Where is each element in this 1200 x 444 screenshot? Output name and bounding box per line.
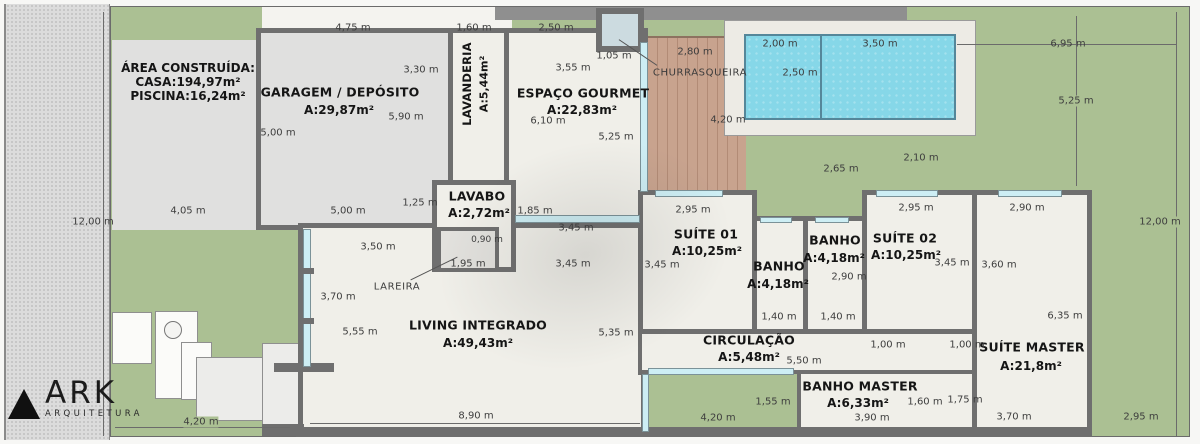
window-mullion: [300, 318, 314, 324]
dimension-label: 5,00 m: [330, 206, 365, 217]
dimension-label: 6,35 m: [1047, 311, 1082, 322]
garden-window-left: [642, 374, 649, 432]
south-wall: [296, 427, 1092, 437]
dimension-label: 2,50 m: [782, 68, 817, 79]
ark-logo-text: ARK: [45, 378, 143, 409]
ark-triangle-icon: [8, 389, 40, 419]
dimension-label: 1,00 m: [870, 340, 905, 351]
dimension-label: 3,70 m: [320, 292, 355, 303]
area-summary-piscina: PISCINA:16,24m²: [121, 89, 255, 103]
room-area-lavabo: A:2,72m²: [448, 206, 510, 220]
garden-window-top: [648, 368, 794, 375]
dimension-label: 4,20 m: [183, 417, 218, 428]
dimension-label: 2,95 m: [1123, 412, 1158, 423]
dimension-label: 3,70 m: [996, 412, 1031, 423]
churrasqueira-box: [596, 8, 644, 52]
dimension-label: 3,55 m: [555, 63, 590, 74]
dimension-label: 12,00 m: [1139, 217, 1181, 228]
banho1-window: [760, 217, 792, 223]
dimension-label: 3,30 m: [403, 65, 438, 76]
dimension-label: 1,95 m: [450, 259, 485, 270]
room-area-suite-master: A:21,8m²: [1000, 359, 1062, 373]
annotation-churrasqueira: CHURRASQUEIRA: [653, 68, 747, 79]
dimension-label: 1,25 m: [402, 198, 437, 209]
room-label-suite02: SUÍTE 02: [873, 231, 937, 246]
room-label-living: LIVING INTEGRADO: [409, 318, 547, 333]
dimension-label: 3,50 m: [862, 39, 897, 50]
area-summary-title: ÁREA CONSTRUÍDA:: [121, 61, 255, 75]
room-area-banho2: A:4,18m²: [803, 251, 865, 265]
dimension-label: 5,55 m: [342, 327, 377, 338]
master-window: [998, 190, 1062, 197]
room-label-suite01: SUÍTE 01: [674, 227, 738, 242]
area-summary-casa: CASA:194,97m²: [121, 75, 255, 89]
back-wall: [495, 7, 907, 20]
dimension-label: 2,50 m: [538, 23, 573, 34]
room-label-suite-master: SUÍTE MASTER: [979, 340, 1084, 355]
dimension-label: 2,80 m: [677, 47, 712, 58]
dimension-label: 3,45 m: [555, 259, 590, 270]
banho2-window: [815, 217, 849, 223]
dimension-label: 5,90 m: [388, 112, 423, 123]
room-area-lavanderia: A:5,44m²: [478, 56, 491, 113]
dimension-label: 3,50 m: [360, 242, 395, 253]
dimension-label: 1,60 m: [907, 397, 942, 408]
dimension-label: 8,90 m: [458, 411, 493, 422]
dimension-label: 1,00 m: [949, 340, 984, 351]
dimension-label: 6,10 m: [530, 116, 565, 127]
dimension-label: 2,90 m: [1009, 203, 1044, 214]
dimension-label: 0,90 m: [471, 235, 503, 245]
room-area-banho-master: A:6,33m²: [827, 396, 889, 410]
dimension-label: 1,55 m: [755, 397, 790, 408]
floor-plan-canvas: ÁREA CONSTRUÍDA: CASA:194,97m² PISCINA:1…: [0, 0, 1200, 444]
dimension-line: [310, 423, 640, 424]
dimension-label: 2,10 m: [903, 153, 938, 164]
dimension-label: 1,85 m: [517, 206, 552, 217]
garden-table: [164, 321, 182, 339]
room-area-banho1: A:4,18m²: [747, 277, 809, 291]
entry-porch: [196, 357, 265, 421]
room-label-circulacao: CIRCULAÇÃO: [703, 333, 795, 348]
room-label-gourmet: ESPAÇO GOURMET: [517, 86, 649, 101]
dimension-label: 12,00 m: [72, 217, 114, 228]
dimension-label: 4,05 m: [170, 206, 205, 217]
room-label-banho2: BANHO: [809, 233, 861, 248]
dimension-label: 2,90 m: [831, 272, 866, 283]
dimension-label: 1,05 m: [596, 51, 631, 62]
dimension-label: 6,95 m: [1050, 39, 1085, 50]
dimension-label: 1,40 m: [761, 312, 796, 323]
dimension-label: 3,60 m: [981, 260, 1016, 271]
entry-ledge-wall: [262, 424, 304, 436]
room-area-suite02: A:10,25m²: [871, 248, 941, 262]
pool-divider: [820, 36, 822, 118]
suite02-window: [876, 190, 938, 197]
room-label-lavabo: LAVABO: [449, 189, 506, 204]
dimension-label: 4,75 m: [335, 23, 370, 34]
paving-stone: [112, 312, 152, 364]
room-label-garagem: GARAGEM / DEPÓSITO: [261, 85, 420, 100]
dimension-label: 1,75 m: [947, 395, 982, 406]
dimension-label: 1,40 m: [820, 312, 855, 323]
ark-logo: ARK ARQUITETURA: [8, 378, 143, 419]
room-area-suite01: A:10,25m²: [672, 244, 742, 258]
area-summary: ÁREA CONSTRUÍDA: CASA:194,97m² PISCINA:1…: [121, 61, 255, 103]
room-label-banho-master: BANHO MASTER: [802, 379, 917, 394]
dimension-label: 5,25 m: [598, 132, 633, 143]
dimension-label: 1,60 m: [456, 23, 491, 34]
dimension-label: 3,45 m: [558, 223, 593, 234]
room-label-banho1: BANHO: [753, 259, 805, 274]
living-west-window: [303, 229, 311, 367]
room-area-circulacao: A:5,48m²: [718, 350, 780, 364]
dimension-label: 5,00 m: [260, 128, 295, 139]
dimension-label: 5,25 m: [1058, 96, 1093, 107]
window-mullion: [300, 268, 314, 274]
dimension-label: 5,35 m: [598, 328, 633, 339]
annotation-lareira: LAREIRA: [374, 282, 420, 293]
dimension-label: 3,90 m: [854, 413, 889, 424]
dimension-label: 3,45 m: [934, 258, 969, 269]
ark-logo-tagline: ARQUITETURA: [45, 409, 143, 419]
dimension-label: 2,65 m: [823, 164, 858, 175]
dimension-label: 2,00 m: [762, 39, 797, 50]
dimension-label: 4,20 m: [700, 413, 735, 424]
room-area-garagem: A:29,87m²: [304, 103, 374, 117]
room-label-lavanderia: LAVANDERIA: [460, 42, 474, 126]
dimension-label: 3,45 m: [644, 260, 679, 271]
dimension-label: 2,95 m: [898, 203, 933, 214]
dimension-label: 2,95 m: [675, 205, 710, 216]
dimension-label: 5,50 m: [786, 356, 821, 367]
room-area-living: A:49,43m²: [443, 336, 513, 350]
dimension-label: 4,20 m: [710, 115, 745, 126]
